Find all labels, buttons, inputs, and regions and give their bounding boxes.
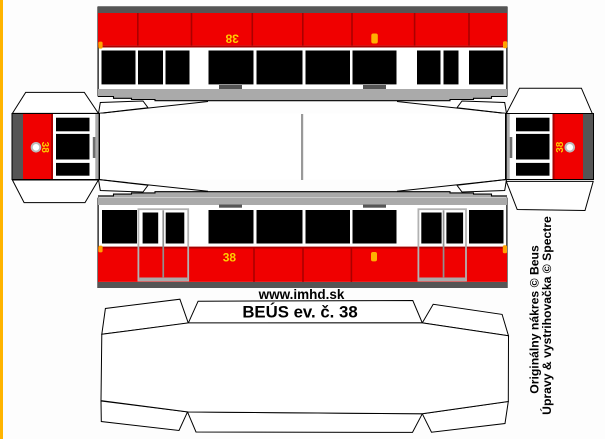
svg-text:38: 38 [223,250,237,264]
svg-text:Úpravy & vystrihovačka © Spect: Úpravy & vystrihovačka © Spectre [539,216,554,415]
svg-text:38: 38 [225,32,239,46]
svg-text:www.imhd.sk: www.imhd.sk [258,287,345,302]
svg-text:38: 38 [39,142,50,154]
svg-text:BEÚS ev. č. 38: BEÚS ev. č. 38 [242,303,357,322]
